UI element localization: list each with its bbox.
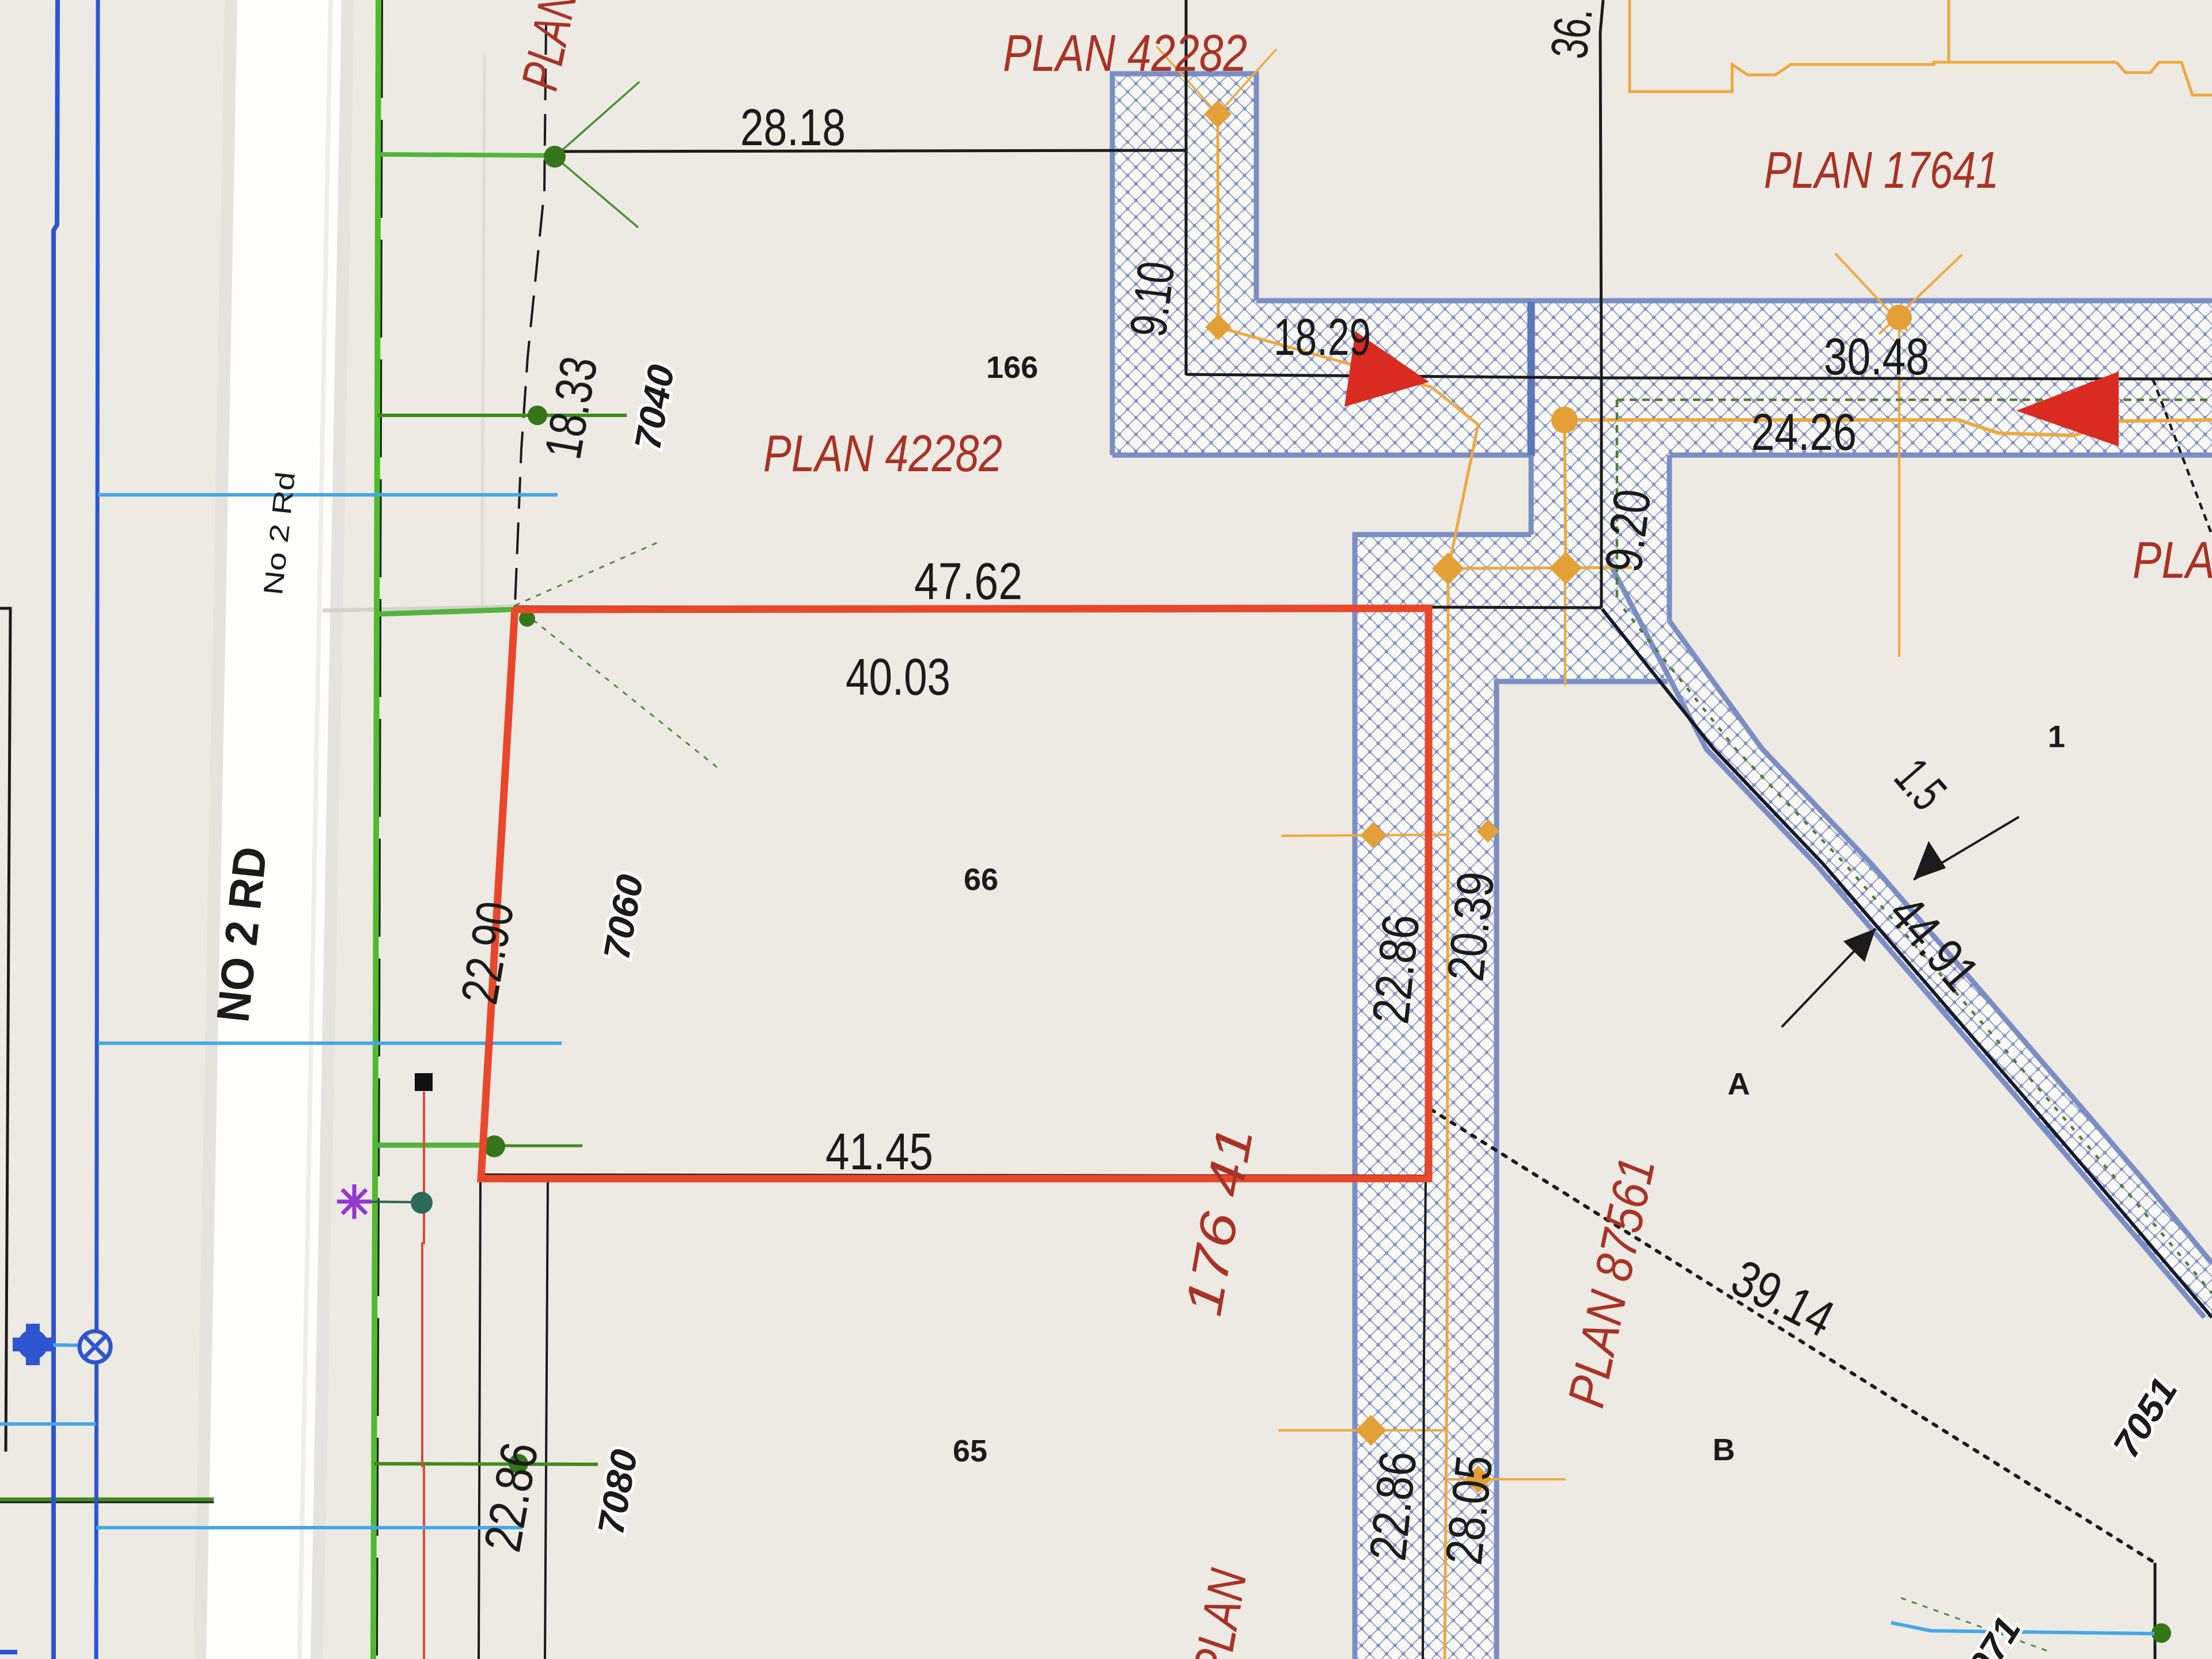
svg-text:24.26: 24.26 bbox=[1751, 404, 1857, 461]
svg-text:166: 166 bbox=[986, 350, 1038, 385]
svg-text:PLAN 8: PLAN 8 bbox=[2133, 532, 2212, 589]
svg-text:22.86: 22.86 bbox=[1359, 1449, 1427, 1563]
svg-text:B: B bbox=[1713, 1433, 1735, 1467]
svg-text:40.03: 40.03 bbox=[846, 649, 950, 706]
svg-text:18.29: 18.29 bbox=[1274, 309, 1371, 366]
svg-text:47.62: 47.62 bbox=[914, 553, 1022, 611]
svg-text:PLAN 42282: PLAN 42282 bbox=[1003, 25, 1247, 82]
svg-text:PLAN 17641: PLAN 17641 bbox=[1764, 142, 1999, 199]
svg-text:9.10: 9.10 bbox=[1119, 259, 1185, 340]
svg-text:1: 1 bbox=[2048, 719, 2065, 754]
svg-text:PLAN 42282: PLAN 42282 bbox=[763, 425, 1002, 483]
svg-text:66: 66 bbox=[964, 862, 998, 897]
svg-text:22.86: 22.86 bbox=[1362, 912, 1430, 1027]
svg-text:9.20: 9.20 bbox=[1595, 486, 1662, 575]
svg-text:41.45: 41.45 bbox=[825, 1123, 933, 1181]
svg-text:65: 65 bbox=[953, 1434, 987, 1468]
svg-text:28.05: 28.05 bbox=[1435, 1453, 1503, 1567]
svg-text:36.: 36. bbox=[1540, 5, 1604, 62]
svg-text:28.18: 28.18 bbox=[740, 99, 846, 157]
svg-text:A: A bbox=[1728, 1067, 1750, 1101]
svg-text:20.39: 20.39 bbox=[1437, 869, 1505, 984]
svg-text:30.48: 30.48 bbox=[1824, 328, 1929, 386]
